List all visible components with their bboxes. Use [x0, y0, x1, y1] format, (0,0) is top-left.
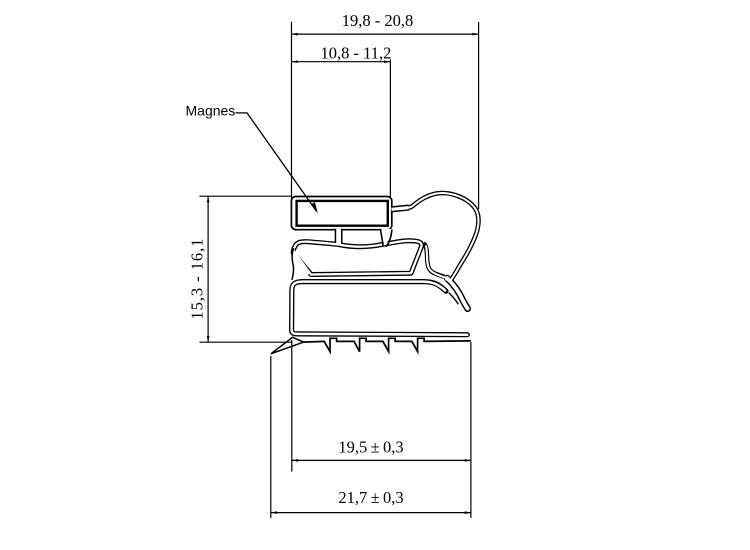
svg-text:21,7 ± 0,3: 21,7 ± 0,3 — [338, 488, 403, 507]
svg-text:19,8 - 20,8: 19,8 - 20,8 — [342, 11, 414, 30]
svg-text:Magnes: Magnes — [186, 102, 236, 118]
svg-text:10,8 - 11,2: 10,8 - 11,2 — [321, 44, 392, 63]
svg-text:15,3 - 16,1: 15,3 - 16,1 — [187, 238, 206, 320]
svg-text:19,5 ± 0,3: 19,5 ± 0,3 — [338, 438, 403, 457]
